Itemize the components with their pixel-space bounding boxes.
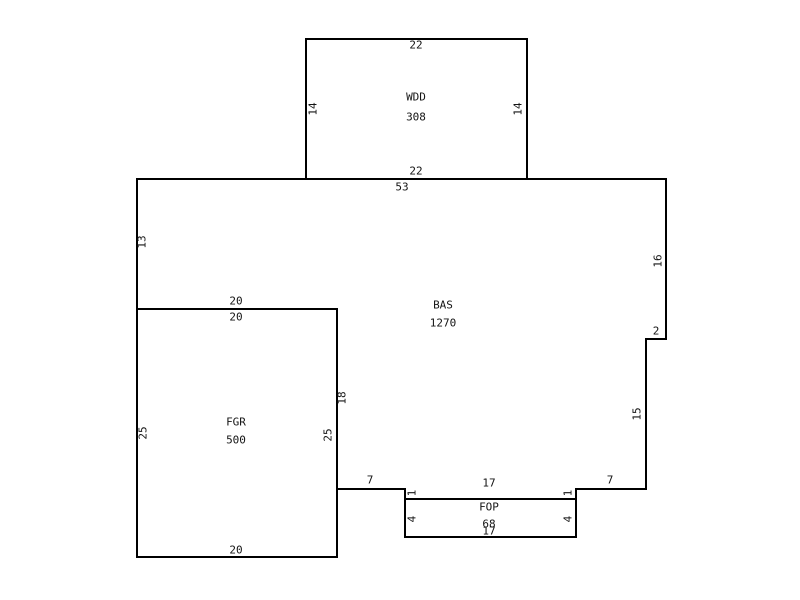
dimension-label: 53 [395,182,408,193]
dimension-label: 15 [632,407,643,420]
dimension-label: 4 [563,516,574,523]
dimension-label: 22 [409,166,422,177]
dimension-label: 20 [229,312,242,323]
dimension-label: 17 [482,526,495,537]
dimension-label: 1 [407,490,418,497]
dimension-label: 20 [229,545,242,556]
dimension-label: 14 [513,102,524,115]
dimension-label: 20 [229,296,242,307]
dimension-label: 25 [323,428,334,441]
room-outline-bas [137,179,666,499]
dimension-label: 2 [653,326,660,337]
room-outline-wdd [306,39,527,179]
dimension-label: 7 [367,475,374,486]
dimension-label: 13 [137,235,148,248]
room-area-fgr: 500 [226,435,246,446]
floorplan-outlines [0,0,800,600]
dimension-label: 14 [308,102,319,115]
dimension-label: 17 [482,478,495,489]
room-code-fgr: FGR [226,417,246,428]
room-area-bas: 1270 [430,318,457,329]
dimension-label: 18 [337,391,348,404]
dimension-label: 22 [409,40,422,51]
dimension-label: 4 [407,516,418,523]
room-code-bas: BAS [433,300,453,311]
room-code-wdd: WDD [406,92,426,103]
dimension-label: 1 [563,490,574,497]
dimension-label: 25 [138,426,149,439]
floorplan-sketch-canvas: WDD 308 BAS 1270 FGR 500 FOP 68 22141422… [0,0,800,600]
dimension-label: 7 [607,475,614,486]
room-code-fop: FOP [479,502,499,513]
room-area-wdd: 308 [406,112,426,123]
dimension-label: 16 [653,254,664,267]
